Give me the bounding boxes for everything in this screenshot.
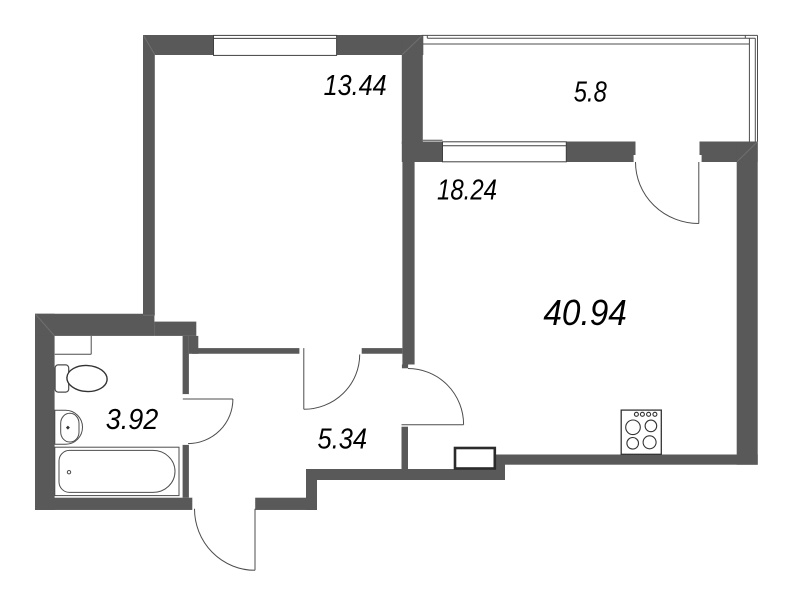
svg-text:18.24: 18.24	[437, 175, 497, 207]
svg-text:40.94: 40.94	[543, 292, 627, 333]
svg-text:3.92: 3.92	[106, 404, 159, 436]
svg-text:13.44: 13.44	[324, 70, 387, 102]
svg-text:5.34: 5.34	[318, 423, 368, 455]
svg-text:5.8: 5.8	[574, 77, 607, 109]
